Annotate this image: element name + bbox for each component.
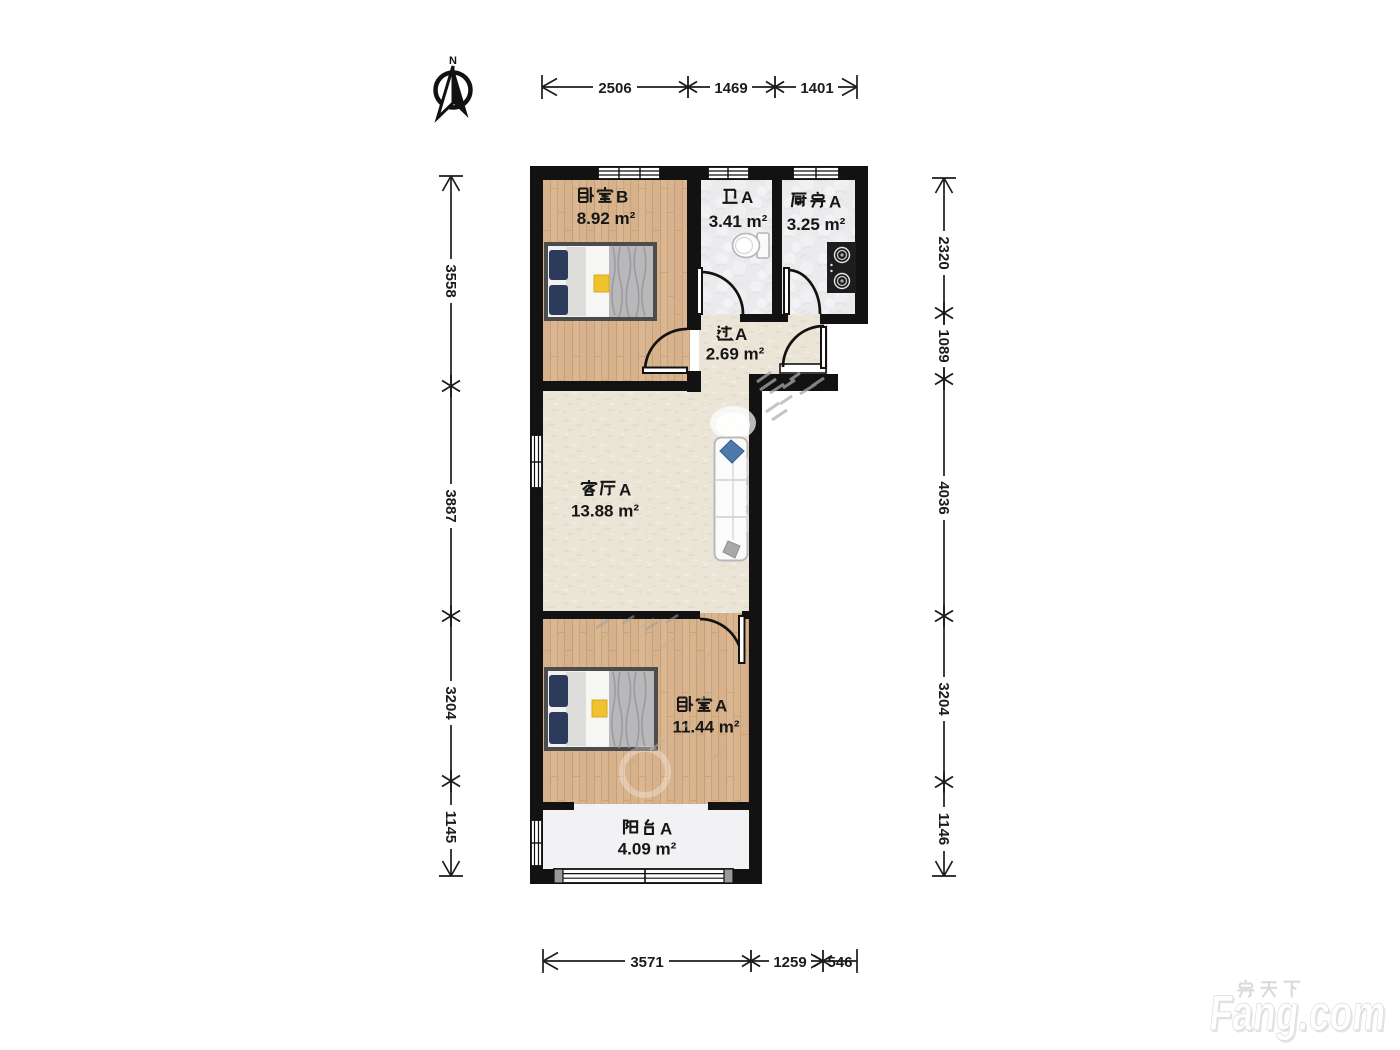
svg-text:A: A <box>715 697 727 716</box>
svg-text:3558: 3558 <box>442 264 459 297</box>
svg-text:1401: 1401 <box>800 80 833 97</box>
svg-text:A: A <box>741 188 753 207</box>
svg-text:N: N <box>449 55 457 67</box>
svg-text:Fang.com: Fang.com <box>1207 985 1389 1041</box>
svg-text:3204: 3204 <box>935 682 952 716</box>
svg-text:3.41 m²: 3.41 m² <box>709 212 768 231</box>
svg-text:A: A <box>829 193 841 212</box>
svg-text:1089: 1089 <box>935 329 952 362</box>
svg-text:1146: 1146 <box>935 813 952 846</box>
svg-text:A: A <box>660 820 672 839</box>
svg-text:2320: 2320 <box>935 236 952 269</box>
svg-text:13.88 m²: 13.88 m² <box>571 502 639 521</box>
svg-text:A: A <box>735 325 747 344</box>
svg-text:A: A <box>619 481 631 500</box>
svg-text:3887: 3887 <box>442 489 459 522</box>
svg-text:1145: 1145 <box>442 811 459 844</box>
svg-text:4.09 m²: 4.09 m² <box>618 840 677 859</box>
svg-text:3204: 3204 <box>442 686 459 720</box>
svg-text:1469: 1469 <box>714 80 747 97</box>
svg-text:2.69 m²: 2.69 m² <box>706 345 765 364</box>
svg-text:8.92 m²: 8.92 m² <box>577 209 636 228</box>
svg-text:546: 546 <box>827 954 852 971</box>
svg-text:3571: 3571 <box>630 954 663 971</box>
svg-text:2506: 2506 <box>598 80 631 97</box>
svg-text:B: B <box>616 188 628 207</box>
svg-text:3.25 m²: 3.25 m² <box>787 215 846 234</box>
svg-text:4036: 4036 <box>935 481 952 514</box>
svg-text:1259: 1259 <box>773 954 806 971</box>
